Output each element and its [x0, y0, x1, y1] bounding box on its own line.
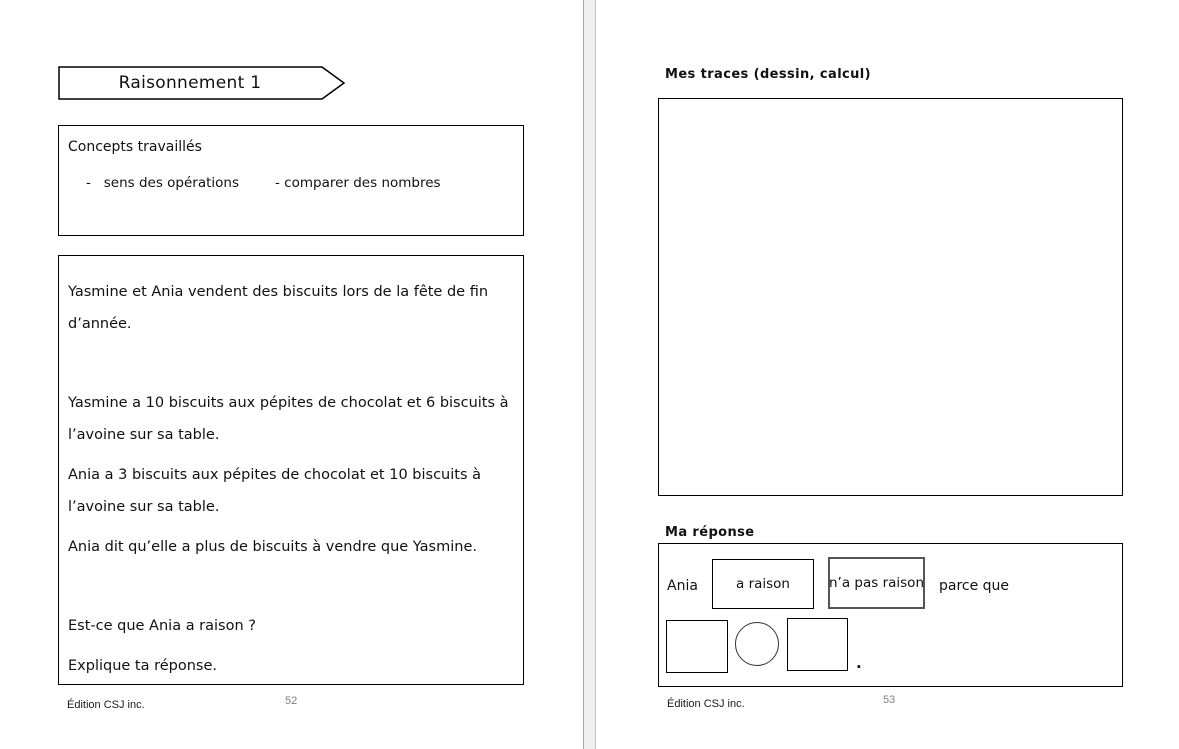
problem-line: l’avoine sur sa table. [68, 491, 523, 523]
page-gutter-divider [583, 0, 596, 749]
problem-line: d’année. [68, 308, 523, 340]
page-left: Raisonnement 1 Concepts travaillés - sen… [0, 0, 583, 749]
problem-line: Yasmine et Ania vendent des biscuits lor… [68, 276, 523, 308]
option-na-pas-raison-box[interactable]: n’a pas raison [828, 557, 925, 609]
problem-line: Ania dit qu’elle a plus de biscuits à ve… [68, 531, 523, 563]
response-subject: Ania [667, 578, 698, 594]
answer-blank-box-1[interactable] [666, 620, 728, 673]
banner-title: Raisonnement 1 [58, 66, 322, 99]
problem-instruction-line: Explique ta réponse. [68, 650, 523, 682]
sentence-period: . [856, 654, 862, 672]
concept-item-comparer: - comparer des nombres [275, 175, 441, 191]
response-box: Ania a raison n’a pas raison parce que . [658, 543, 1123, 687]
problem-box: Yasmine et Ania vendent des biscuits lor… [58, 255, 524, 685]
page-number: 52 [285, 695, 297, 707]
problem-line: l’avoine sur sa table. [68, 419, 523, 451]
option-a-raison-box[interactable]: a raison [712, 559, 814, 609]
comparison-symbol-circle[interactable] [735, 622, 779, 666]
concepts-heading: Concepts travaillés [68, 139, 202, 155]
page-number: 53 [883, 694, 895, 706]
problem-line: Ania a 3 biscuits aux pépites de chocola… [68, 459, 523, 491]
publisher-text: Édition CSJ inc. [667, 698, 745, 710]
concepts-box: Concepts travaillés - sens des opération… [58, 125, 524, 236]
problem-question-line: Est-ce que Ania a raison ? [68, 610, 523, 642]
traces-heading: Mes traces (dessin, calcul) [665, 67, 871, 82]
raisonnement-banner: Raisonnement 1 [58, 66, 346, 100]
publisher-text: Édition CSJ inc. [67, 699, 145, 711]
concept-item-operations: - sens des opérations [86, 175, 239, 191]
answer-blank-box-2[interactable] [787, 618, 848, 671]
traces-drawing-area[interactable] [658, 98, 1123, 496]
response-heading: Ma réponse [665, 525, 755, 540]
response-connector: parce que [939, 578, 1009, 594]
problem-line: Yasmine a 10 biscuits aux pépites de cho… [68, 387, 523, 419]
